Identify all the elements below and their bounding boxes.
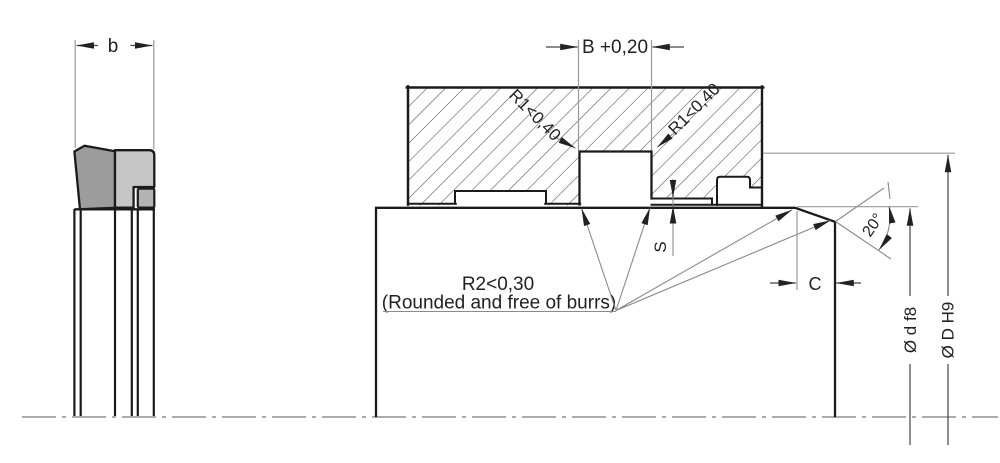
rod-diameter-label: Ø d f8 — [901, 307, 920, 353]
dim-B-label: B +0,20 — [582, 37, 648, 58]
seal-groove-drawing: b B — [0, 0, 1000, 463]
dim-C-label: C — [809, 274, 822, 294]
seal-insert — [138, 189, 155, 208]
seal-lip-body — [74, 146, 115, 210]
bore-diameter-label: Ø D H9 — [939, 302, 958, 359]
main-section-view: B +0,20 R1<0,40 R1<0,40 S R2<0,30 (Round… — [376, 37, 958, 445]
groove-outline — [580, 152, 652, 205]
dim-bore-diameter: Ø D H9 — [763, 153, 958, 445]
dim-S-label: S — [651, 241, 670, 252]
seal-silhouette-lines — [74, 209, 153, 416]
dim-b: b — [75, 36, 154, 149]
note-r2: R2<0,30 (Rounded and free of burrs) — [382, 208, 831, 314]
r2-note-line2: (Rounded and free of burrs) — [382, 293, 616, 314]
dim-chamfer-angle: 20° — [836, 182, 892, 259]
chamfer-angle-label: 20° — [859, 211, 887, 241]
dim-rod-diameter: Ø d f8 — [797, 207, 920, 445]
dim-C: C — [770, 211, 861, 294]
seal-side-view: b — [74, 36, 155, 416]
technical-drawing-canvas: b B — [0, 0, 1000, 463]
dim-b-label: b — [108, 36, 119, 57]
